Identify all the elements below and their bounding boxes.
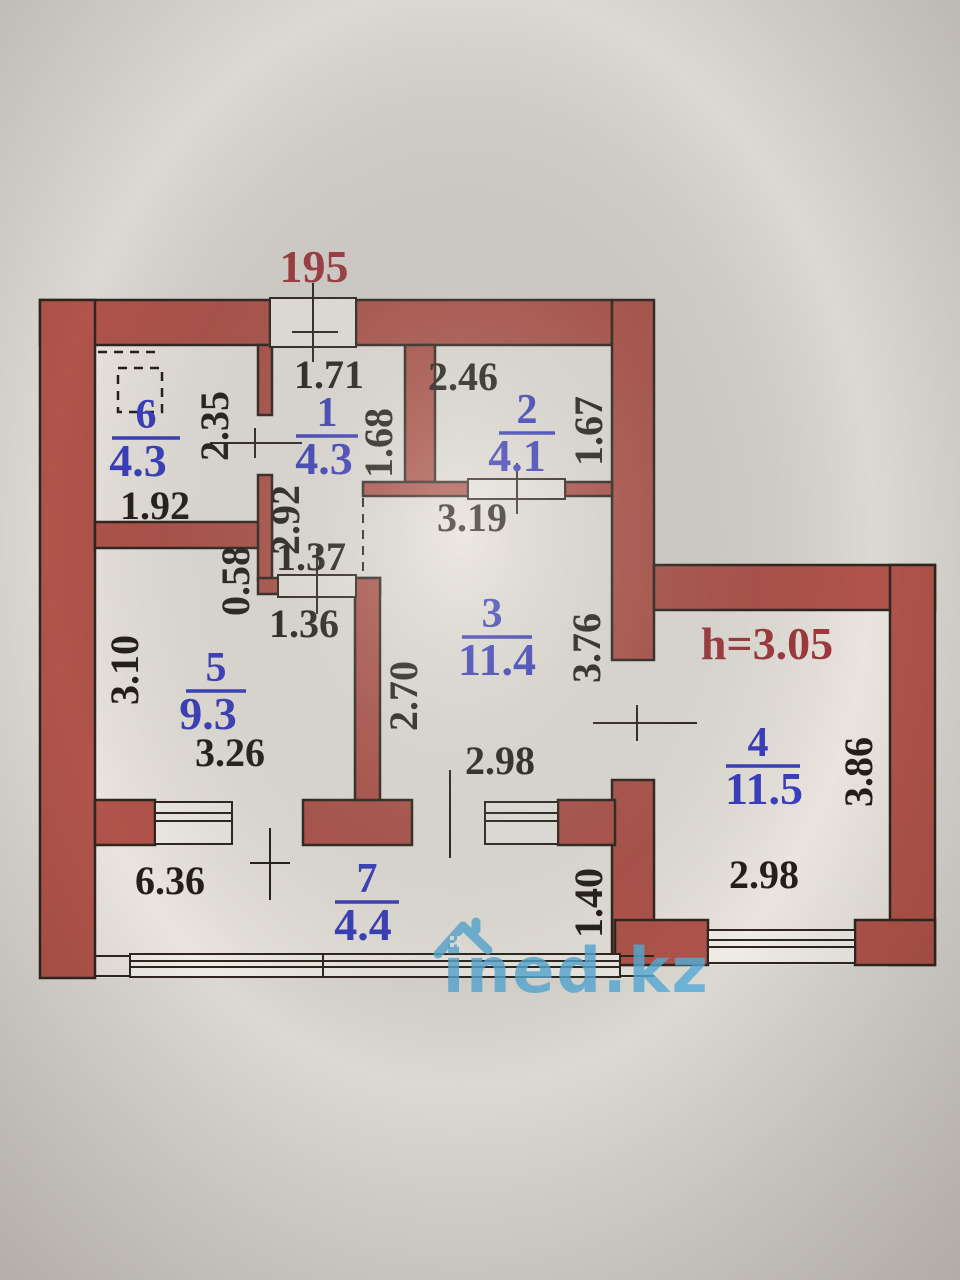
wall-right-upper [612, 300, 654, 660]
dim-room6-depth: 2.35 [192, 391, 237, 461]
dim-wall-stub: 0.58 [213, 546, 258, 616]
wall-r6-r1-upper [258, 345, 272, 415]
wall-top-right [356, 300, 612, 345]
floor-plan-svg: 1.71 2.46 1.92 3.19 1.37 1.36 3.26 2.98 … [0, 0, 960, 1280]
dim-room4-depth: 3.86 [836, 737, 881, 807]
wall-room4-bottom-right [855, 920, 935, 965]
dim-room3-depth-left: 2.70 [381, 661, 426, 731]
dim-room3-depth-right: 3.76 [564, 613, 609, 683]
wall-left [40, 300, 95, 978]
dim-room3-width-bottom: 2.98 [465, 738, 535, 783]
floor-plan-photo: 1.71 2.46 1.92 3.19 1.37 1.36 3.26 2.98 … [0, 0, 960, 1280]
room7-number: 7 [357, 856, 378, 902]
plan-number-label: 195 [280, 241, 349, 292]
wall-r5-r7-a [95, 800, 155, 845]
dim-room2-width-top: 2.46 [428, 354, 498, 399]
dim-room1-depth: 1.68 [356, 408, 401, 478]
room6-area: 4.3 [109, 435, 167, 486]
dim-balcony-depth: 1.40 [566, 868, 611, 938]
room2-area: 4.1 [488, 430, 546, 481]
wall-room3-top-a [363, 482, 468, 496]
dim-room6-width: 1.92 [120, 483, 190, 528]
window-room5-balcony [155, 802, 232, 844]
dim-room5-depth: 3.10 [102, 635, 147, 705]
wall-room3-top-b [565, 482, 612, 496]
room5-area: 9.3 [179, 688, 237, 739]
wall-r5-r7-b [303, 800, 412, 845]
wall-r5-r3 [355, 578, 380, 800]
room1-number: 1 [317, 390, 338, 436]
dim-hall-depth: 2.92 [263, 485, 308, 555]
room6-number: 6 [136, 392, 157, 438]
room2-number: 2 [517, 387, 538, 433]
watermark: ined.kz [438, 922, 710, 1007]
dim-room4-width: 2.98 [729, 852, 799, 897]
dim-room2-depth: 1.67 [566, 396, 611, 466]
dim-hall-width-bottom: 1.36 [269, 601, 339, 646]
room3-number: 3 [482, 591, 503, 637]
room4-area: 11.5 [725, 763, 803, 814]
room7-area: 4.4 [334, 899, 392, 950]
ceiling-height-label: h=3.05 [701, 618, 833, 669]
window-room3-balcony [485, 802, 558, 844]
wall-room4-right [890, 565, 935, 965]
dim-balcony-width: 6.36 [135, 858, 205, 903]
room3-area: 11.4 [458, 634, 536, 685]
wall-r5-r7-c [558, 800, 615, 845]
room5-number: 5 [206, 645, 227, 691]
room4-number: 4 [748, 720, 769, 766]
room1-area: 4.3 [295, 433, 353, 484]
window-room4 [708, 930, 855, 963]
dim-room3-width-top: 3.19 [437, 495, 507, 540]
